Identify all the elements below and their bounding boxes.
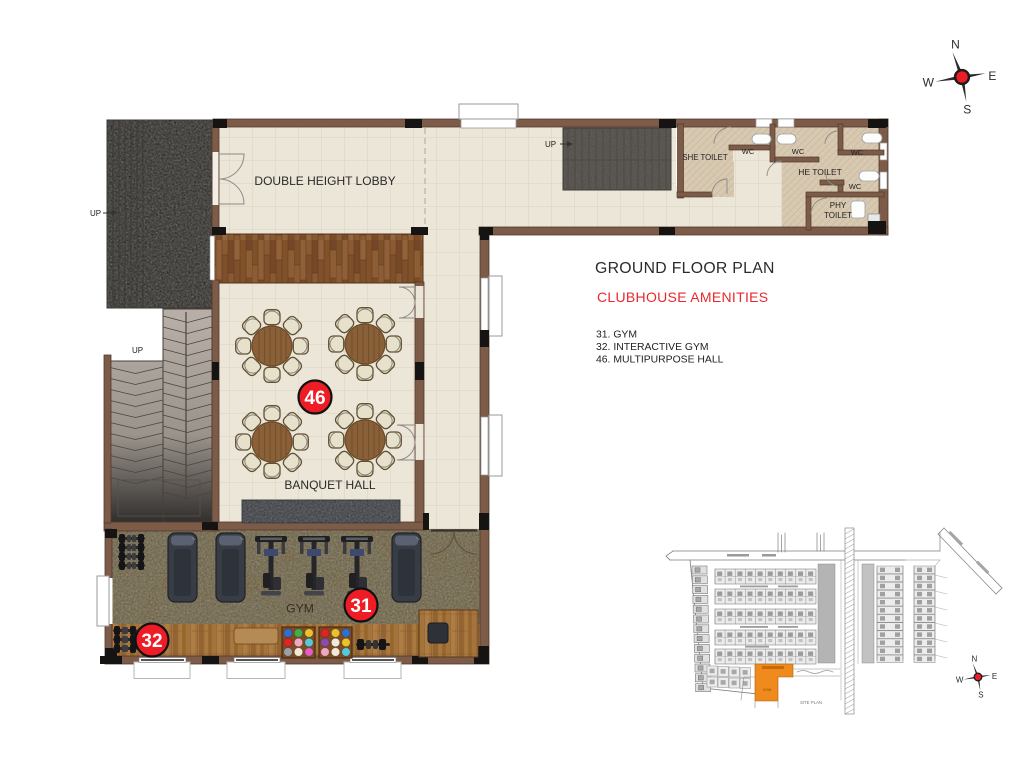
svg-text:BANQUET HALL: BANQUET HALL xyxy=(284,478,375,492)
svg-text:46: 46 xyxy=(304,388,325,409)
svg-text:SHE TOILET: SHE TOILET xyxy=(682,153,727,162)
svg-text:GROUND FLOOR PLAN: GROUND FLOOR PLAN xyxy=(595,260,775,277)
svg-text:WC: WC xyxy=(849,182,862,191)
svg-text:UP: UP xyxy=(90,209,101,218)
svg-text:W: W xyxy=(923,75,935,89)
svg-text:N: N xyxy=(972,655,978,664)
svg-text:S: S xyxy=(978,690,983,699)
svg-text:UP: UP xyxy=(132,346,143,355)
svg-text:GYM: GYM xyxy=(763,688,771,692)
svg-text:31: 31 xyxy=(350,596,372,617)
svg-text:UP: UP xyxy=(545,140,556,149)
svg-text:GYM: GYM xyxy=(286,602,314,616)
svg-text:PHY: PHY xyxy=(830,201,847,210)
svg-text:N: N xyxy=(951,38,960,52)
svg-text:S: S xyxy=(963,103,971,117)
svg-text:SITE PLAN: SITE PLAN xyxy=(800,700,822,705)
svg-text:WC: WC xyxy=(792,147,805,156)
svg-text:DOUBLE HEIGHT LOBBY: DOUBLE HEIGHT LOBBY xyxy=(254,174,395,188)
svg-text:31. GYM: 31. GYM xyxy=(596,330,637,341)
svg-text:32. INTERACTIVE GYM: 32. INTERACTIVE GYM xyxy=(596,342,709,353)
svg-text:32: 32 xyxy=(141,631,162,652)
svg-text:HE TOILET: HE TOILET xyxy=(798,167,842,177)
svg-text:TOILET: TOILET xyxy=(824,211,852,220)
svg-text:W: W xyxy=(956,676,964,685)
svg-text:WC: WC xyxy=(851,148,864,157)
svg-text:CLUBHOUSE AMENITIES: CLUBHOUSE AMENITIES xyxy=(597,289,768,305)
svg-text:WC: WC xyxy=(742,147,755,156)
svg-text:E: E xyxy=(992,672,997,681)
svg-text:E: E xyxy=(988,69,996,83)
svg-text:46. MULTIPURPOSE HALL: 46. MULTIPURPOSE HALL xyxy=(596,355,724,366)
